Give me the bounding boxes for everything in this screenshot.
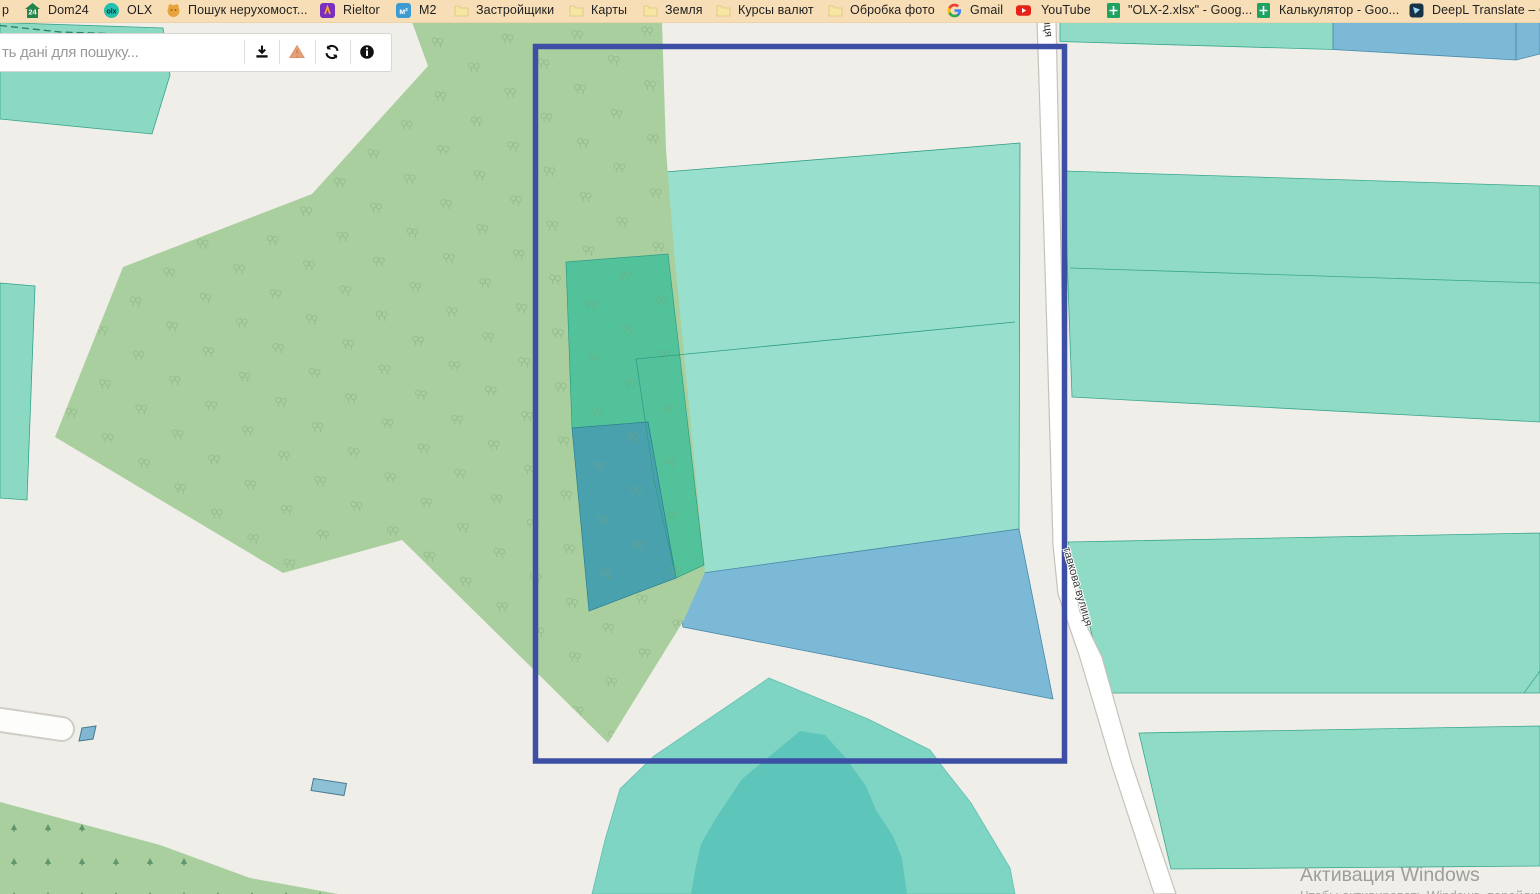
svg-text:24: 24 bbox=[28, 8, 37, 17]
svg-text:м²: м² bbox=[399, 7, 408, 16]
svg-text:Чтобы активировать Windows, пе: Чтобы активировать Windows, перейдите в … bbox=[1300, 888, 1540, 894]
svg-text:olx: olx bbox=[106, 8, 116, 15]
svg-text:Активация Windows: Активация Windows bbox=[1300, 864, 1480, 886]
